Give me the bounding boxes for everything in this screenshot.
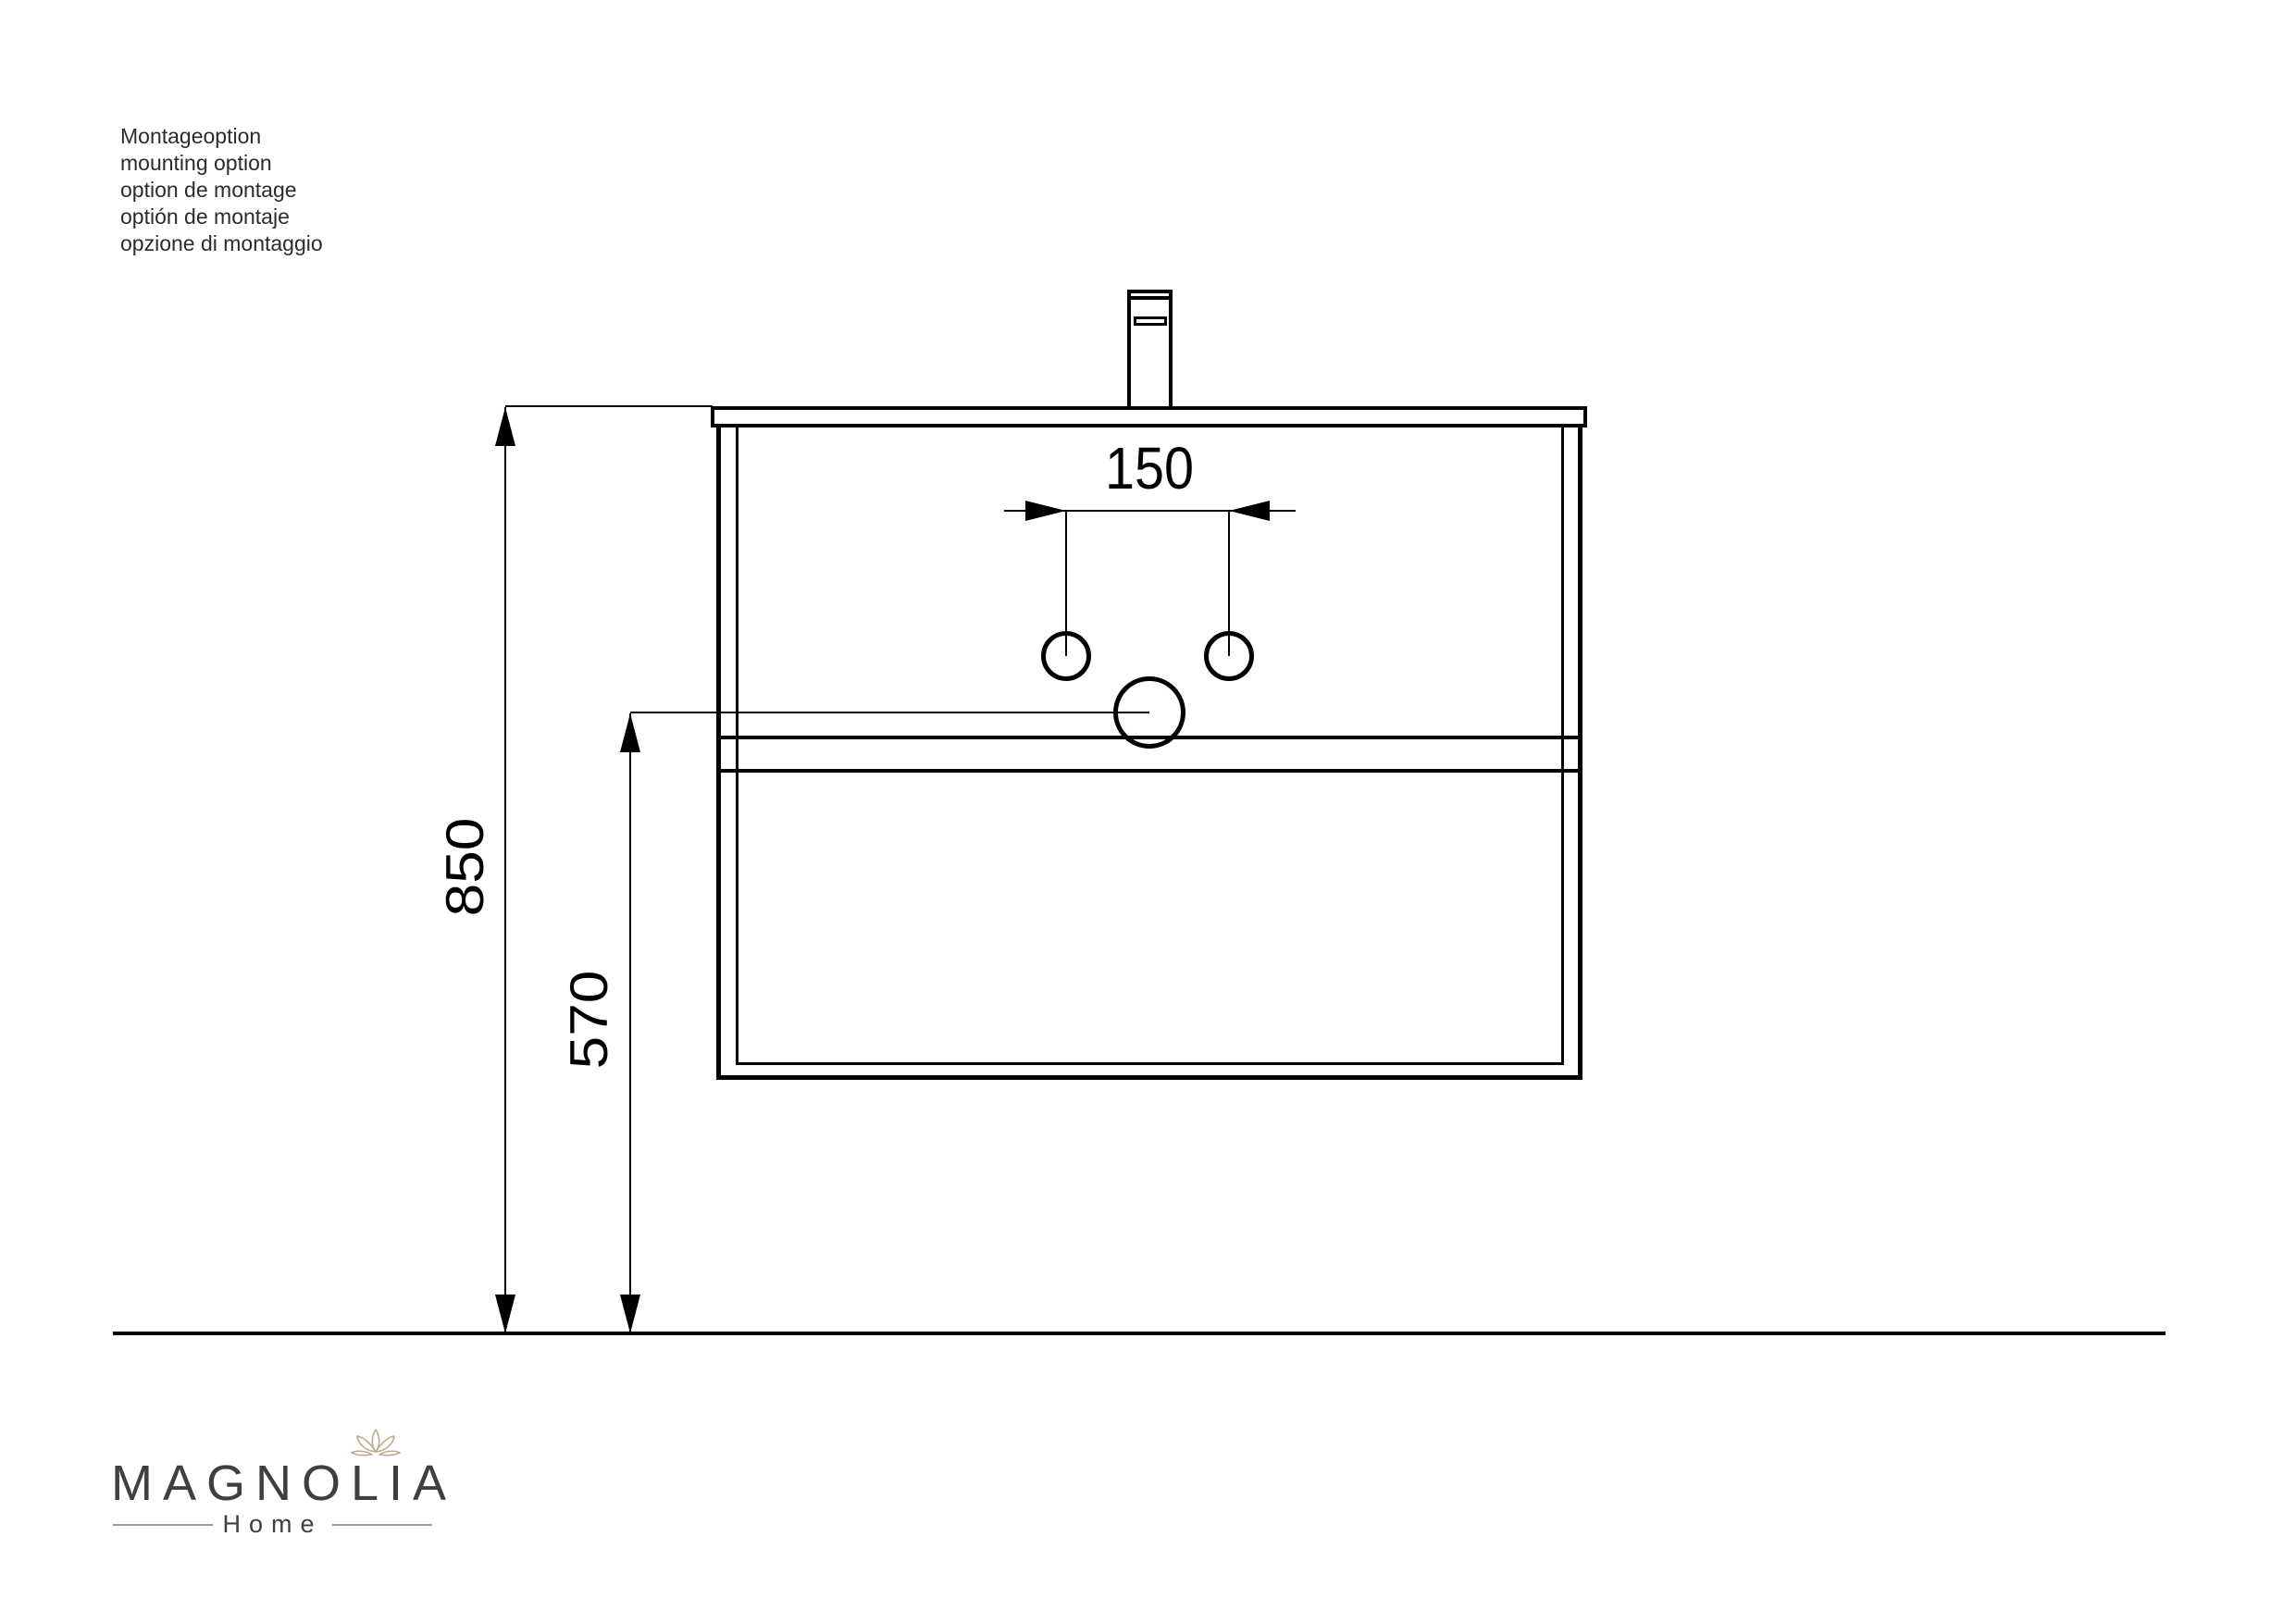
note-line-de: Montageoption	[120, 123, 323, 150]
dim-150-arrow-left-icon	[1025, 501, 1066, 521]
logo-rule-left	[113, 1524, 213, 1526]
washbasin-countertop	[711, 406, 1587, 427]
note-line-es: optión de montaje	[120, 204, 323, 230]
logo-home-label: Home	[222, 1510, 322, 1539]
dim-150-label: 150	[1066, 439, 1233, 498]
logo-brand: MAGNOLIA	[111, 1455, 456, 1512]
note-line-it: opzione di montaggio	[120, 230, 323, 257]
faucet-spout	[1134, 316, 1167, 326]
lotus-icon	[348, 1427, 403, 1466]
logo-home-row: Home	[113, 1510, 432, 1539]
dim-850-extension-line	[505, 405, 713, 407]
dim-570-line	[629, 713, 631, 1333]
dim-150-extension-right	[1228, 511, 1230, 656]
faucet-body	[1127, 290, 1173, 406]
dim-150-extension-left	[1065, 511, 1067, 656]
faucet-cap-line	[1127, 296, 1173, 300]
cabinet-divider-lower	[716, 769, 1582, 773]
note-line-fr: option de montage	[120, 177, 323, 204]
dim-570-arrow-bottom-icon	[620, 1295, 640, 1333]
logo-rule-right	[332, 1524, 432, 1526]
dim-850-line	[504, 407, 506, 1333]
dim-150-arrow-right-icon	[1229, 501, 1270, 521]
floor-line	[113, 1332, 2166, 1335]
dim-570-arrow-top-icon	[620, 713, 640, 752]
dim-850-label: 850	[438, 774, 491, 960]
mounting-option-notes: Montageoption mounting option option de …	[120, 123, 323, 257]
dim-850-arrow-top-icon	[495, 407, 515, 446]
note-line-en: mounting option	[120, 150, 323, 177]
dim-570-label: 570	[562, 927, 615, 1112]
dim-570-extension-line	[630, 712, 1149, 713]
dim-850-arrow-bottom-icon	[495, 1295, 515, 1333]
